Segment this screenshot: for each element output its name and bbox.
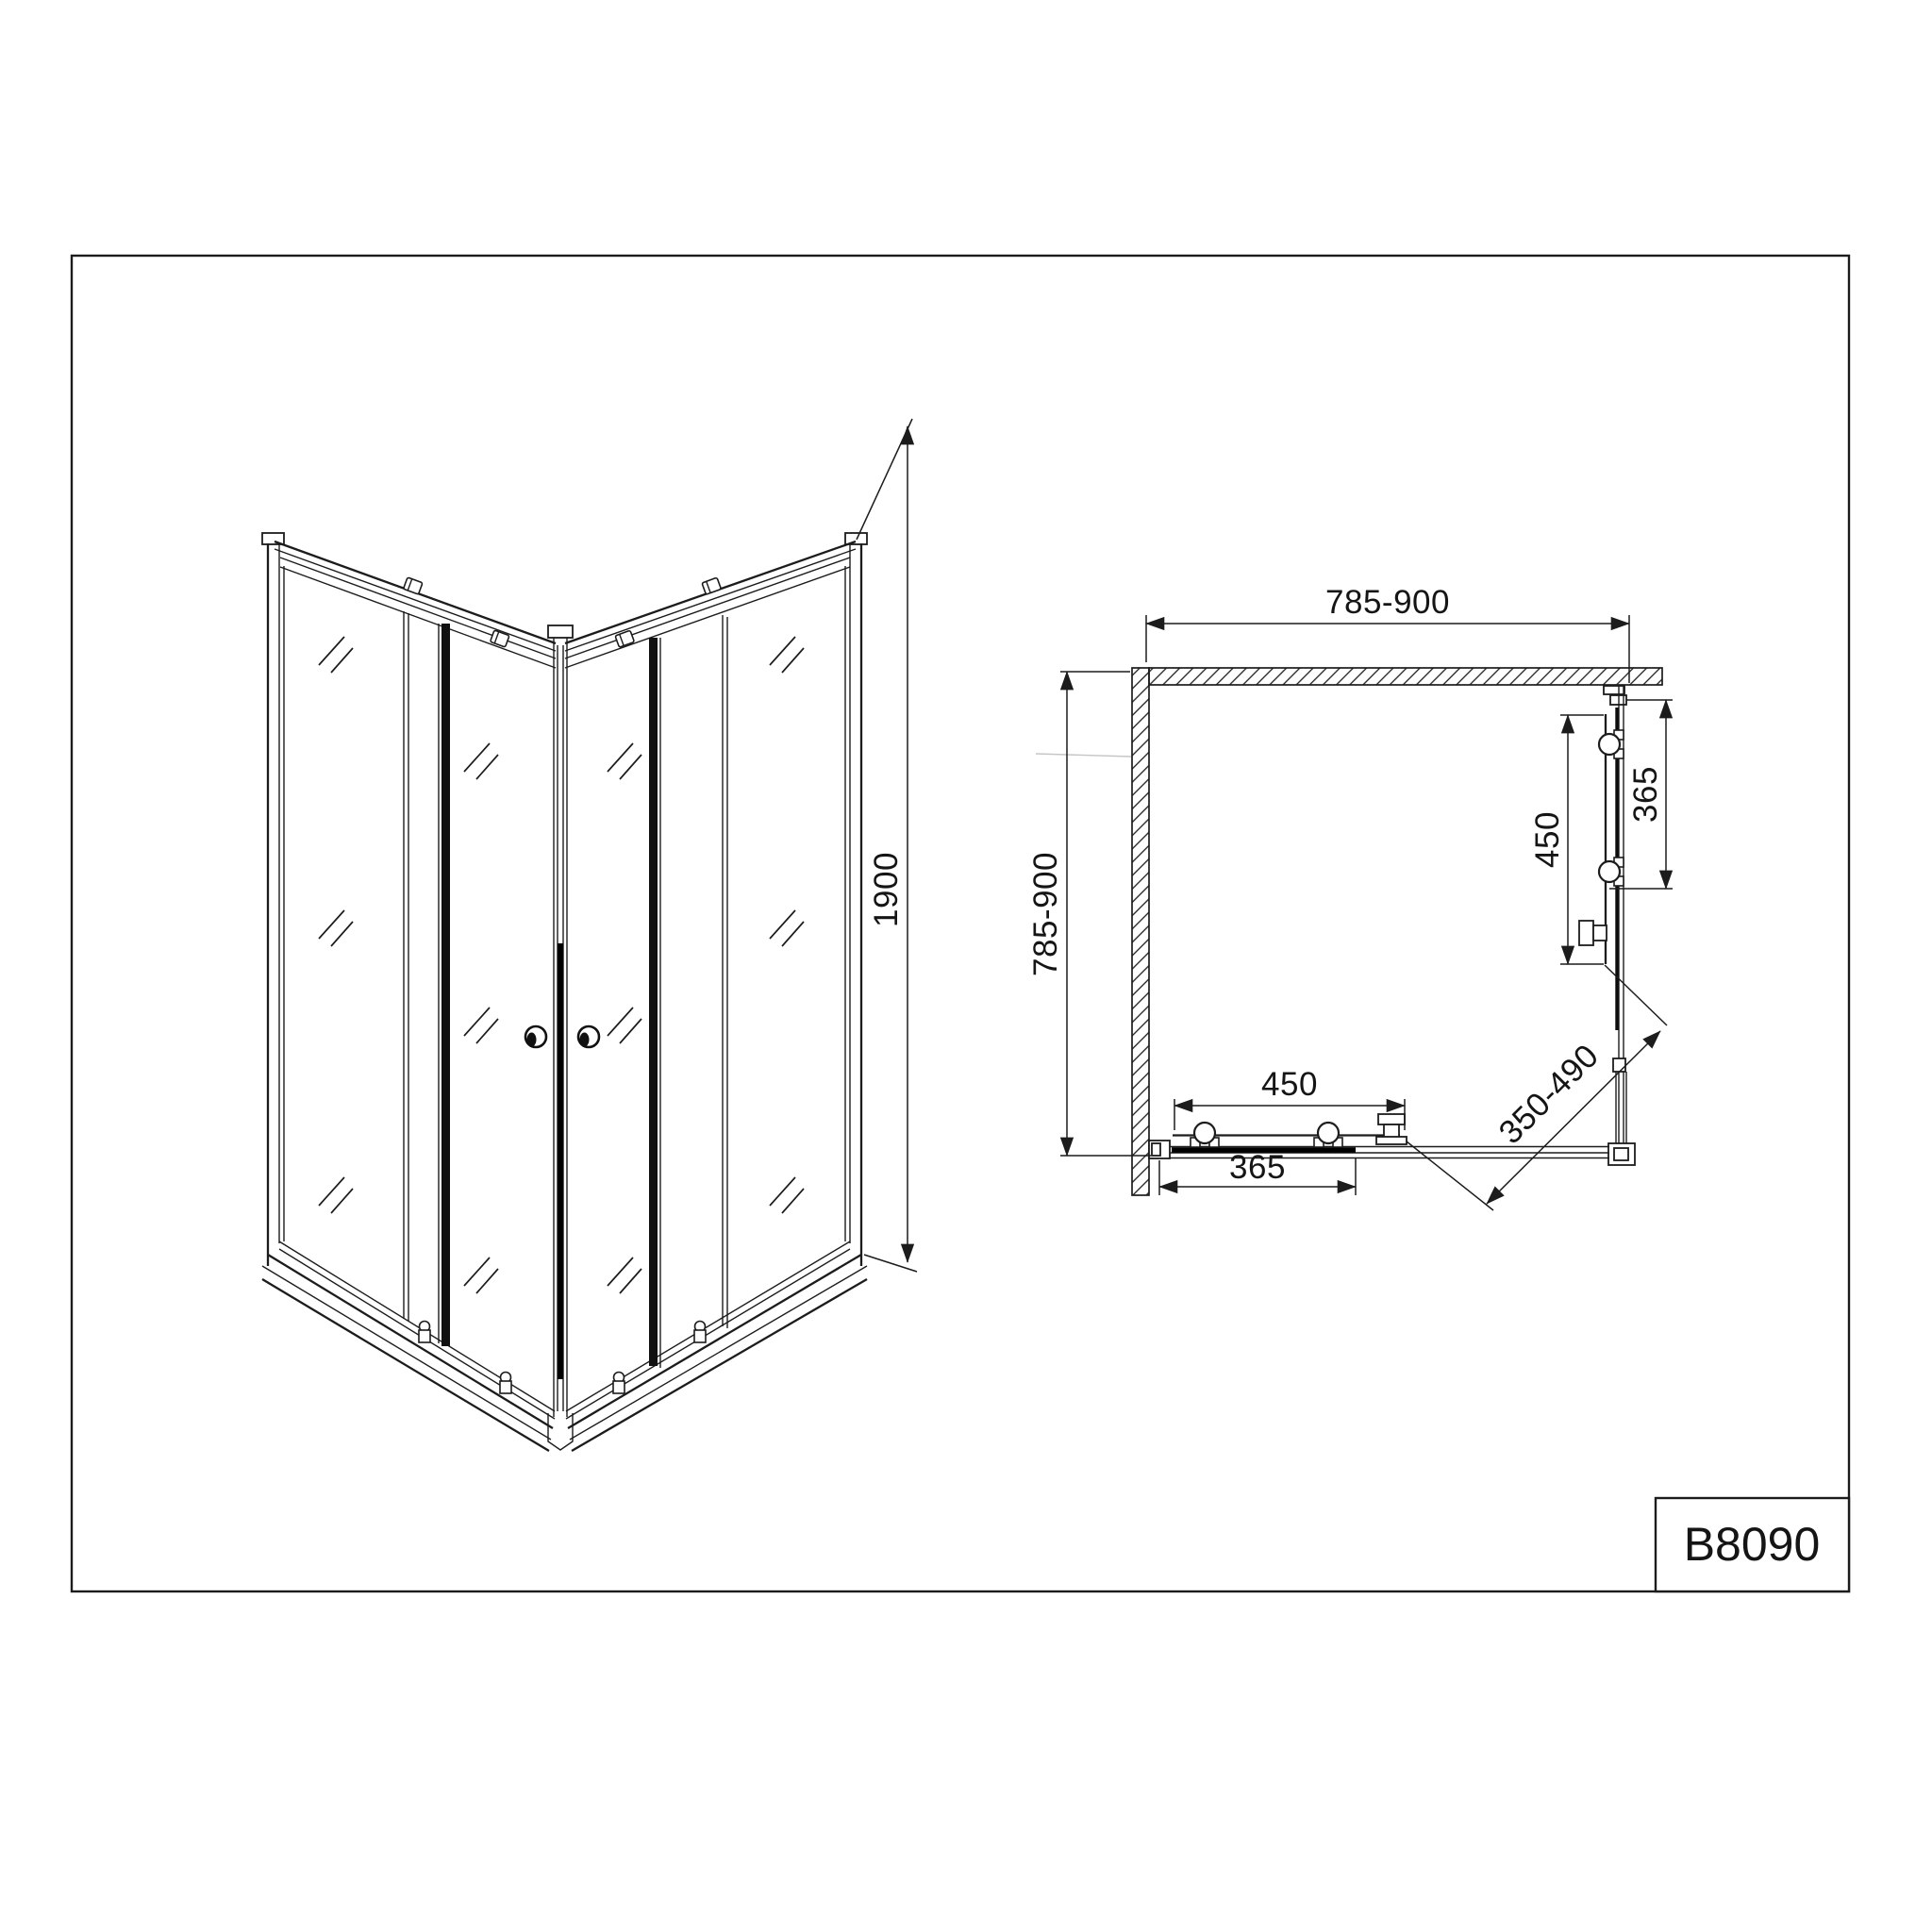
model-label: B8090 xyxy=(1684,1518,1821,1571)
height-dim-label: 1900 xyxy=(868,852,905,927)
model-label-box: B8090 xyxy=(1656,1498,1849,1591)
front-panel-dim-label: 365 xyxy=(1229,1149,1286,1186)
technical-drawing: 1900 xyxy=(0,0,1932,1932)
side-door-dim-label: 450 xyxy=(1529,811,1566,868)
wall-left xyxy=(1132,668,1149,1195)
width-dim-label: 785-900 xyxy=(1325,584,1450,621)
door-knob-left xyxy=(525,1026,546,1047)
depth-dim-label: 785-900 xyxy=(1027,852,1064,976)
drawing-page: 1900 xyxy=(0,0,1932,1932)
wall-top xyxy=(1149,668,1662,685)
front-door-dim-label: 450 xyxy=(1261,1066,1318,1103)
door-knob-right xyxy=(578,1026,599,1047)
side-panel-dim-label: 365 xyxy=(1627,766,1664,823)
